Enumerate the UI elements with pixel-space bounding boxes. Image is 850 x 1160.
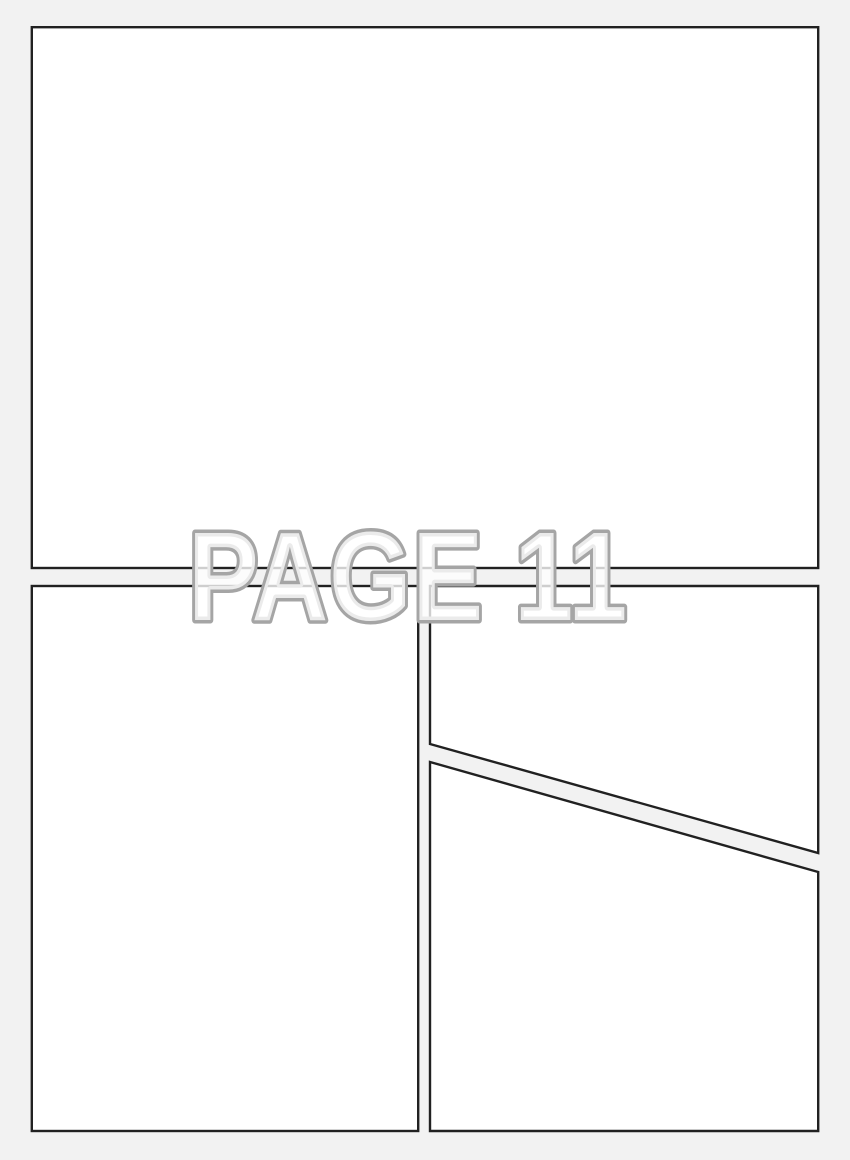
panel-bottom-left [32, 586, 418, 1131]
comic-page-template: PAGE 11 [0, 0, 850, 1160]
panel-top [32, 27, 818, 568]
page-number-label: PAGE 11 [188, 506, 628, 647]
comic-page-canvas: PAGE 11 [0, 0, 850, 1160]
